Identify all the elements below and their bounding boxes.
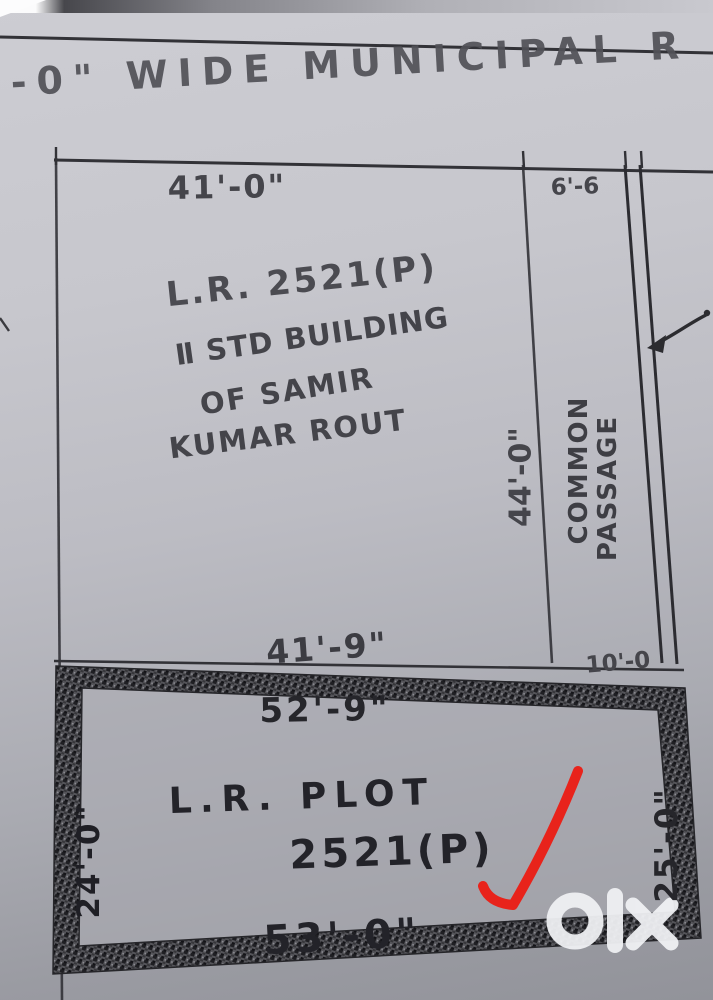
lower-plot-left-dimension: 24'-0" [71,803,107,918]
olx-letter-l-icon [607,888,623,953]
lower-plot-bottom-dimension: 53'-0" [262,910,421,964]
passage-name-line-2: PASSAGE [593,415,623,561]
plot-sketch-photo: '-0" WIDE MUNICIPAL R 41'-0" 6'-6 L.R. 2… [0,0,713,1000]
arrow-head-icon [647,335,666,353]
left-edge-mark [0,318,9,331]
top-plot-right-dimension: 44'-0" [504,427,539,527]
passage-name-line-1: COMMON [564,396,594,545]
passage-double-line-2 [640,165,677,664]
top-plot-top-dimension: 41'-0" [167,167,286,207]
passage-top-dimension: 6'-6 [550,173,599,201]
passage-left-line [523,165,552,663]
top-plot-top-line [54,160,713,172]
lower-plot-name-line-2: 2521(P) [289,825,496,878]
lower-plot-top-dimension: 52'-9" [259,689,391,731]
passage-double-line-1 [625,165,662,663]
lower-plot-right-dimension: 25'-0" [649,787,685,902]
